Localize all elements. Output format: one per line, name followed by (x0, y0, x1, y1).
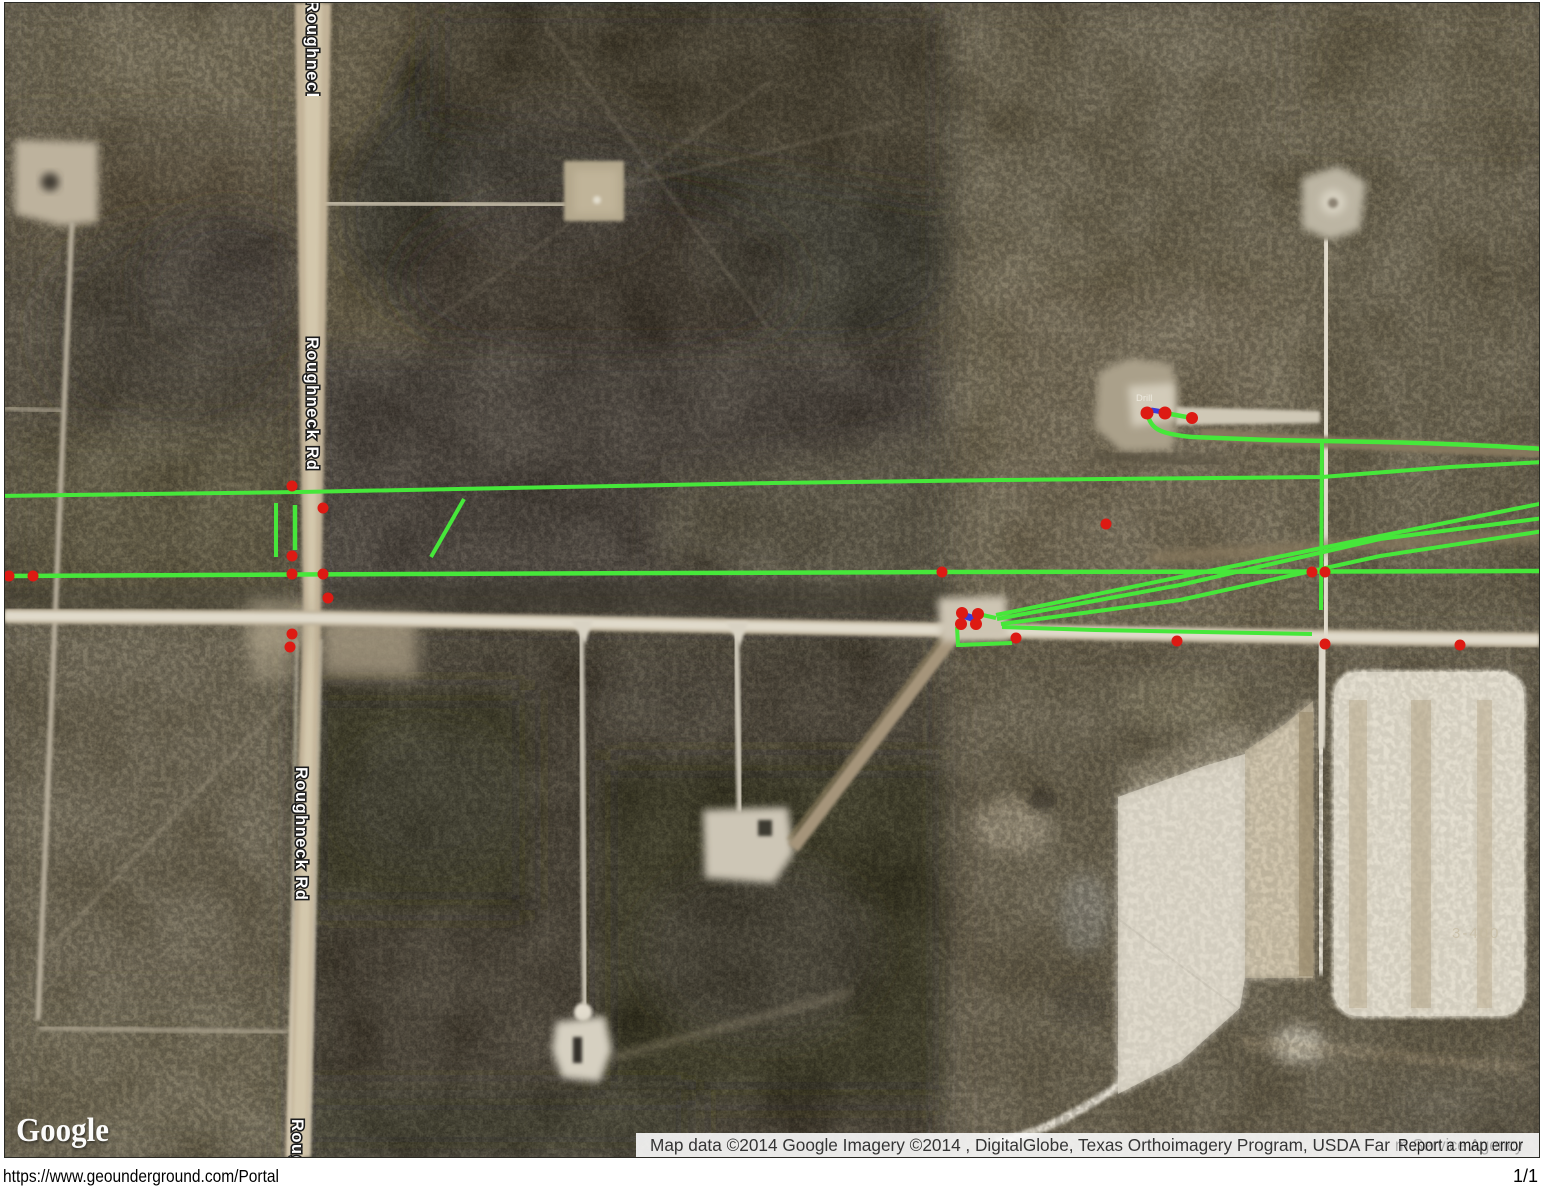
svg-text:https://www.geounderground.com: https://www.geounderground.com/Portal (3, 1166, 279, 1186)
svg-text:Roughneck Rd: Roughneck Rd (303, 337, 321, 471)
svg-text:1/1: 1/1 (1513, 1166, 1538, 1186)
svg-text:Roughneck Rd: Roughneck Rd (292, 767, 310, 901)
svg-text:Map data ©2014 Google Imagery: Map data ©2014 Google Imagery ©2014 , Di… (650, 1135, 1390, 1155)
svg-text:3-400: 3-400 (1452, 925, 1500, 942)
svg-text:Google: Google (16, 1112, 109, 1149)
svg-text:Drill: Drill (1136, 393, 1152, 404)
svg-text:Report a map error: Report a map error (1398, 1135, 1523, 1155)
